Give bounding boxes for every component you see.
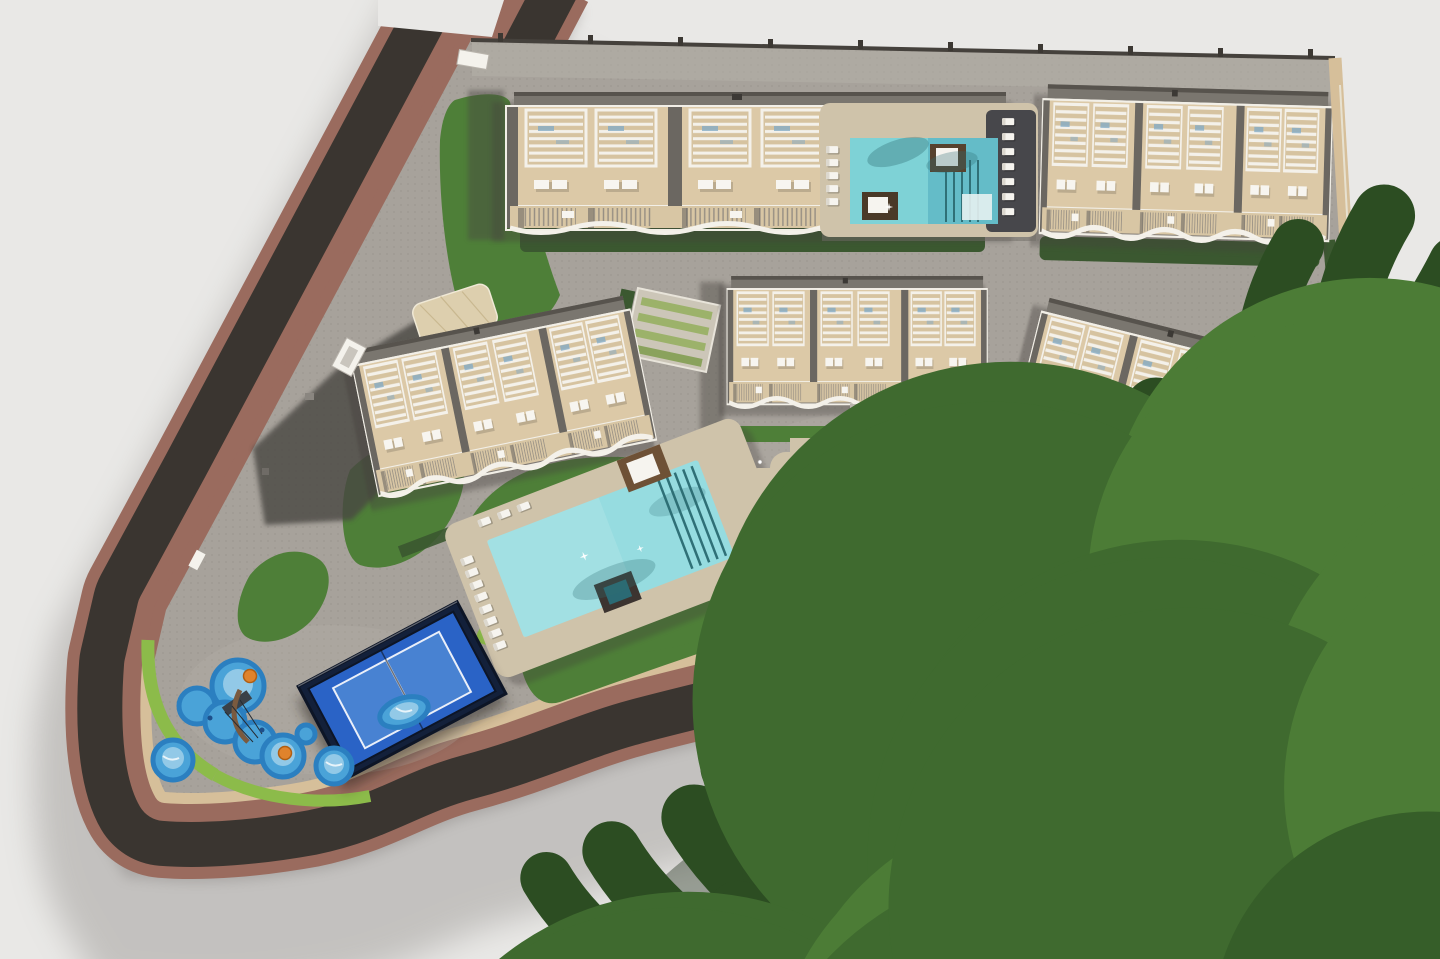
pool-north	[820, 103, 1038, 241]
utility-box	[305, 393, 314, 400]
siteplan-render	[0, 0, 1440, 959]
pool-shelf	[962, 194, 992, 220]
utility-box	[262, 468, 269, 475]
